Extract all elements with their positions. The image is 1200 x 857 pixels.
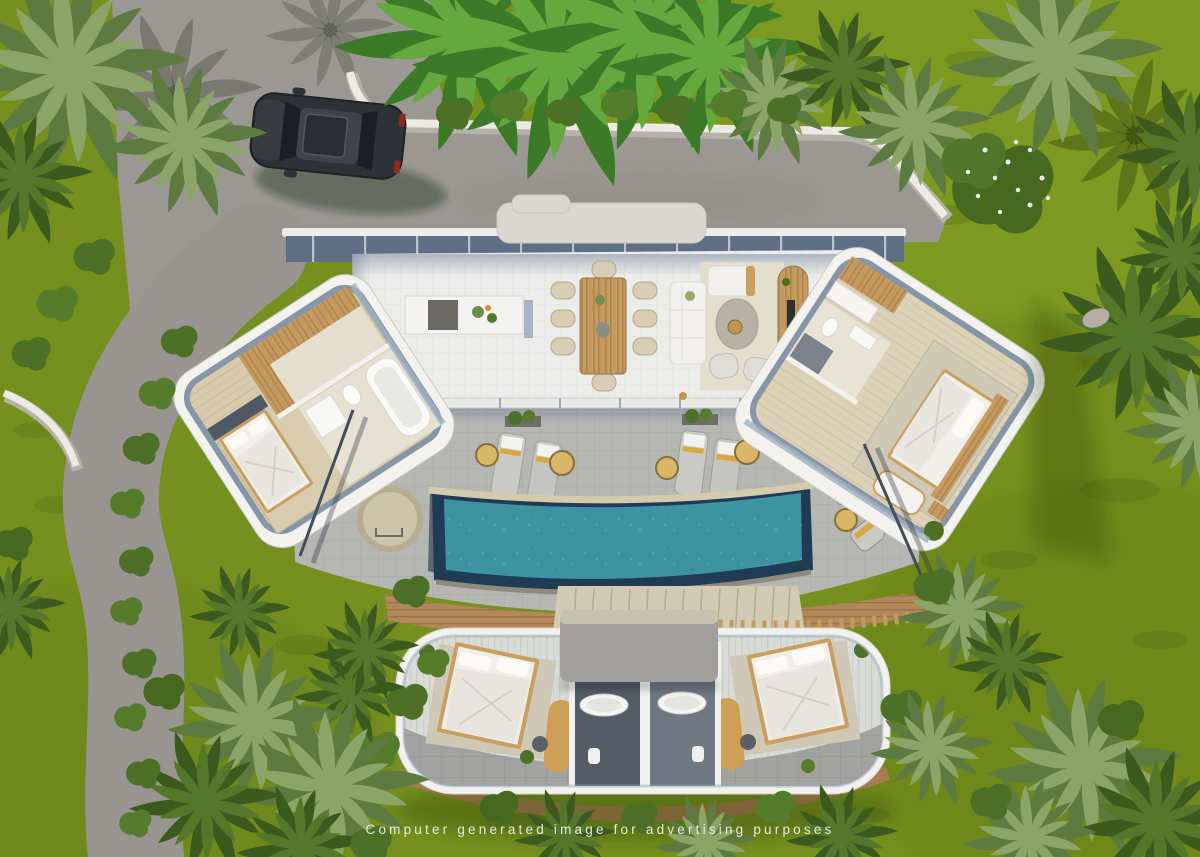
coffee-table xyxy=(728,320,742,334)
caption: Computer generated image for advertising… xyxy=(0,822,1200,837)
lounge-chaise xyxy=(708,266,755,296)
kitchen-island xyxy=(405,296,533,338)
round-daybed xyxy=(360,489,420,549)
aerial-villa-render: Computer generated image for advertising… xyxy=(0,0,1200,857)
guest-wing-canopy xyxy=(560,610,718,690)
infinity-pool xyxy=(428,485,813,592)
sofa xyxy=(670,282,706,364)
